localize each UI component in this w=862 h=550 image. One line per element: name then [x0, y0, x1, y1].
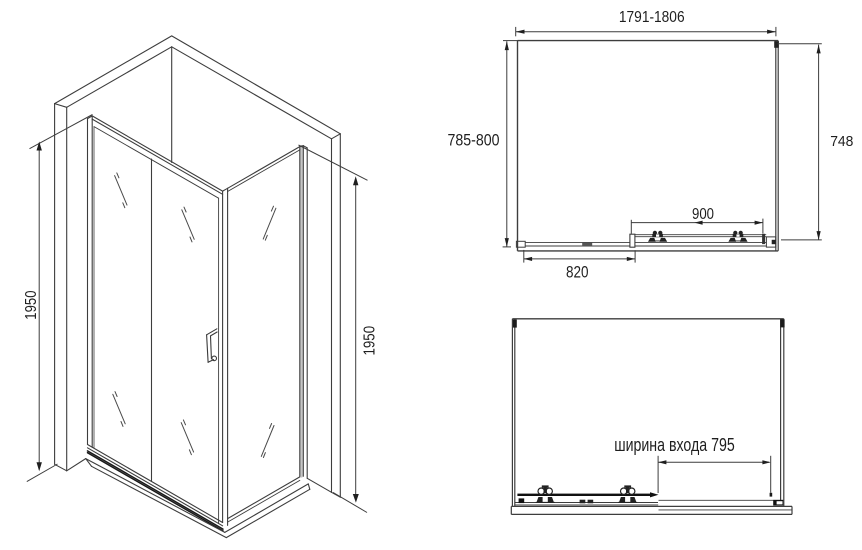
- svg-text:900: 900: [692, 206, 714, 223]
- svg-text:1950: 1950: [362, 326, 379, 356]
- svg-text:1791-1806: 1791-1806: [619, 9, 685, 26]
- svg-text:785-800: 785-800: [448, 131, 500, 150]
- svg-text:1950: 1950: [23, 290, 40, 319]
- svg-text:ширина входа 795: ширина входа 795: [614, 434, 735, 455]
- svg-text:748: 748: [830, 134, 853, 150]
- svg-text:820: 820: [566, 263, 589, 282]
